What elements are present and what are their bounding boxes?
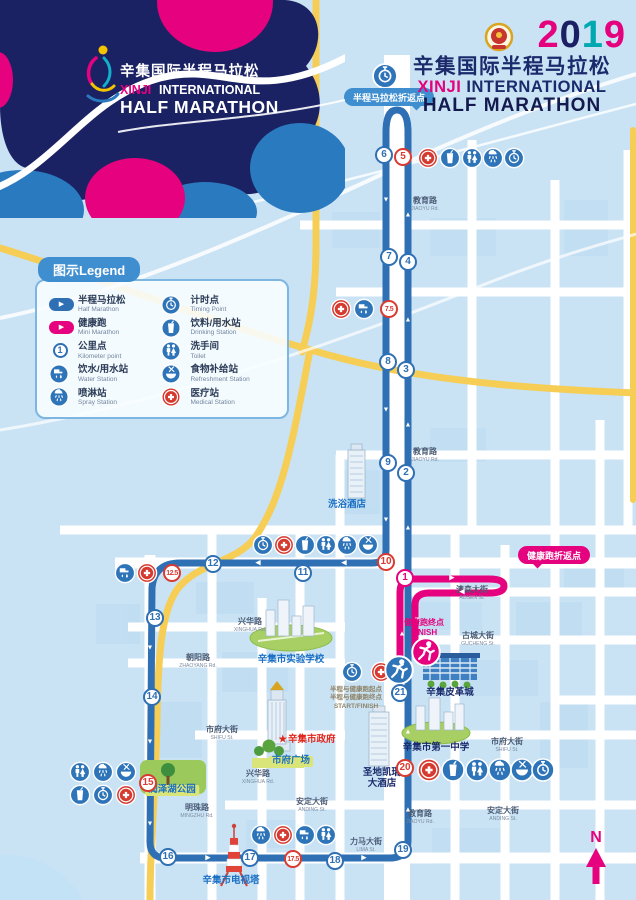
road-name-cn: 兴华路 — [231, 618, 269, 627]
km-marker-4: 4 — [399, 253, 417, 271]
start-finish-label: 半程与健康跑起点 半程与健康跑终点 START/FINISH — [330, 686, 382, 711]
road-name-en: ANDING St. — [298, 807, 325, 813]
legend-item: 洗手间Toilet — [161, 339, 283, 362]
route-direction-arrow: ◀ — [341, 560, 346, 567]
km-marker-20: 20 — [396, 759, 414, 777]
toilet-station-icon — [316, 825, 337, 846]
legend-item-en: Water Station — [78, 376, 128, 383]
logo-title-en-accent: XINJI — [120, 83, 151, 97]
landmark-label: 辛集皮革城 — [426, 688, 474, 699]
road-label: 市府大街SHIFU St. — [206, 726, 238, 741]
legend-item: 医疗站Medical Station — [161, 386, 283, 409]
road-label: 教育路JIAOYU Rd. — [409, 197, 442, 212]
shower-station-icon — [251, 825, 272, 846]
legend-item: ▶健康跑Mini Marathon — [49, 316, 161, 339]
drink-legend-icon — [161, 318, 183, 338]
water-station-icon — [295, 825, 316, 846]
legend-item-en: Toilet — [190, 353, 219, 360]
route-direction-arrow: ▲ — [405, 729, 412, 736]
water-station-icon — [354, 299, 375, 320]
road-name-cn: 市府大街 — [491, 738, 523, 747]
toilet-station-icon — [462, 148, 483, 169]
legend-item-cn: 半程马拉松 — [78, 296, 126, 306]
toilet-legend-icon — [161, 341, 183, 361]
legend-item: 食物补给站Refreshment Station — [161, 363, 283, 386]
legend-item-en: Refreshment Station — [190, 376, 249, 383]
road-name-en: AOSEN St. — [458, 595, 485, 601]
toilet-station-icon — [316, 535, 337, 556]
legend-item-cn: 洗手间 — [190, 342, 219, 352]
km-marker-19: 19 — [394, 841, 412, 859]
road-name-en: ANDING St. — [489, 816, 516, 822]
route-direction-arrow: ▲ — [405, 422, 412, 429]
year-digit: 0 — [560, 14, 582, 56]
event-logo: 辛集国际半程马拉松 XINJI INTERNATIONAL HALF MARAT… — [0, 0, 345, 218]
road-name-cn: 兴华路 — [239, 770, 277, 779]
legend-item: 1公里点Kilometer point — [49, 339, 161, 362]
water-station-icon — [115, 563, 136, 584]
timing-station-icon — [253, 535, 274, 556]
timing-legend-icon — [161, 295, 183, 315]
route-direction-arrow: ▶ — [205, 855, 210, 862]
road-name-en: SHIFU St. — [493, 747, 520, 753]
legend-item-en: Half Marathon — [78, 306, 126, 313]
road-name-en: ZHAOYANG Rd. — [179, 663, 217, 669]
km-marker-7: 7 — [380, 248, 398, 266]
road-label: 教育路JIAOYU Rd. — [409, 448, 442, 463]
road-label: 朝阳路ZHAOYANG Rd. — [176, 654, 220, 669]
km-marker-17: 17 — [241, 849, 259, 867]
timing-station-icon — [342, 662, 363, 683]
road-label: 市府大街SHIFU St. — [491, 738, 523, 753]
road-name-cn: 朝阳路 — [176, 654, 220, 663]
km-marker-3: 3 — [397, 361, 415, 379]
legend-item: 饮料/用水站Drinking Station — [161, 316, 283, 339]
legend-item-cn: 医疗站 — [190, 389, 234, 399]
road-name-cn: 安定大街 — [296, 798, 328, 807]
toilet-station-icon — [465, 758, 489, 782]
road-name-en: JIAOYU Rd. — [411, 457, 439, 463]
timing-station-icon — [93, 785, 114, 806]
drink-station-icon — [440, 148, 461, 169]
medical-station-icon — [331, 299, 352, 320]
event-header: 2019 辛集国际半程马拉松 XINJI INTERNATIONAL HALF … — [392, 16, 632, 117]
legend-item: 喷淋站Spray Station — [49, 386, 161, 409]
route-direction-arrow: ▼ — [147, 821, 154, 828]
route-direction-arrow: ▼ — [147, 739, 154, 746]
north-label: N — [590, 829, 602, 847]
legend-item-cn: 计时点 — [190, 296, 226, 306]
shower-station-icon — [488, 758, 512, 782]
timing-station-icon — [504, 148, 525, 169]
runner-pink-station-icon — [411, 637, 441, 667]
star-icon: ★ — [278, 734, 287, 745]
route-direction-arrow: ▲ — [405, 525, 412, 532]
km-marker-16: 16 — [159, 848, 177, 866]
road-name-en: XINGHUA Rd. — [234, 627, 266, 633]
mini-marathon-turnaround-badge: 健康跑折返点 — [518, 546, 590, 564]
medical-station-icon — [273, 825, 294, 846]
marathon-route-map: 半程马拉松折返点 健康跑折返点 健康跑终点 FINISH 半程与健康跑起点 半程… — [0, 0, 636, 900]
food-legend-icon — [161, 364, 183, 384]
legend-item: 计时点Timing Point — [161, 293, 283, 316]
road-name-en: JIAOYU Rd. — [411, 206, 439, 212]
legend-body: ▶半程马拉松Half Marathon▶健康跑Mini Marathon1公里点… — [35, 279, 289, 419]
shower-legend-icon — [49, 387, 71, 407]
event-emblem-icon — [484, 22, 514, 52]
legend-item-en: Medical Station — [190, 399, 234, 406]
route-direction-arrow: ▲ — [405, 212, 412, 219]
km-marker-10: 10 — [377, 553, 395, 571]
legend-item-en: Mini Marathon — [78, 329, 119, 336]
road-label: 力马大街LIMA St. — [350, 838, 382, 853]
landmark-label: 圣地凯瑞大酒店 — [363, 768, 401, 790]
mini-finish-label: 健康跑终点 FINISH — [404, 618, 444, 637]
road-name-en: SHIFU St. — [208, 735, 235, 741]
km-marker-17.5: 17.5 — [284, 850, 302, 868]
km-marker-9: 9 — [379, 454, 397, 472]
year-digit: 2 — [537, 14, 559, 56]
road-name-cn: 安定大街 — [487, 807, 519, 816]
route-direction-arrow: ▶ — [361, 855, 366, 862]
road-name-cn: 教育路 — [409, 448, 442, 457]
route-direction-arrow: ▼ — [383, 517, 390, 524]
year-digit: 1 — [582, 14, 604, 56]
route-direction-arrow: ▲ — [405, 317, 412, 324]
year-digit: 9 — [604, 14, 626, 56]
road-label: 古城大街GUCHENG St. — [458, 632, 498, 647]
route-direction-arrow: ◀ — [459, 589, 464, 596]
shower-station-icon — [93, 762, 114, 783]
landmark-label: 辛集市电视塔 — [202, 876, 259, 887]
road-name-en: MINGZHU Rd. — [180, 813, 213, 819]
event-title-cn: 辛集国际半程马拉松 — [392, 56, 632, 79]
route-direction-arrow: ▼ — [383, 197, 390, 204]
landmark-label: 辛集市第一中学 — [403, 743, 470, 754]
route-direction-arrow: ▼ — [383, 407, 390, 414]
km-marker-15: 15 — [139, 774, 157, 792]
km-marker-12.5: 12.5 — [163, 564, 181, 582]
legend-title: 图示Legend — [38, 257, 140, 282]
road-label: 兴华路XINGHUA Rd. — [239, 770, 277, 785]
route-direction-arrow: ▲ — [405, 807, 412, 814]
road-name-en: XINGHUA Rd. — [242, 779, 274, 785]
road-label: 安定大街ANDING St. — [487, 807, 519, 822]
road-label: 兴华路XINGHUA Rd. — [231, 618, 269, 633]
road-name-en: JIAOYU Rd. — [406, 819, 434, 825]
km-marker-14: 14 — [143, 688, 161, 706]
water-legend-icon — [49, 364, 71, 384]
road-name-cn: 教育路 — [409, 197, 442, 206]
logo-title-en2: HALF MARATHON — [120, 97, 279, 117]
legend-item: 饮水/用水站Water Station — [49, 363, 161, 386]
medical-station-icon — [274, 535, 295, 556]
km-marker-12: 12 — [204, 555, 222, 573]
legend-item-cn: 饮水/用水站 — [78, 365, 128, 375]
drink-station-icon — [441, 758, 465, 782]
km-marker-1: 1 — [396, 569, 414, 587]
shower-station-icon — [483, 148, 504, 169]
legend-item-cn: 喷淋站 — [78, 389, 117, 399]
pill-blue-legend-icon: ▶ — [49, 298, 71, 311]
road-name-cn: 明珠路 — [178, 804, 217, 813]
km-marker-21: 21 — [391, 684, 409, 702]
km-marker-18: 18 — [326, 852, 344, 870]
legend-item-en: Drinking Station — [190, 329, 240, 336]
km-marker-8: 8 — [379, 353, 397, 371]
food-station-icon — [116, 762, 137, 783]
route-direction-arrow: ▶ — [449, 575, 454, 582]
legend-panel: 图示Legend ▶半程马拉松Half Marathon▶健康跑Mini Mar… — [35, 257, 289, 419]
road-label: 明珠路MINGZHU Rd. — [178, 804, 217, 819]
mini-finish-en: FINISH — [411, 628, 437, 637]
legend-item-en: Spray Station — [78, 399, 117, 406]
km-marker-7.5: 7.5 — [380, 300, 398, 318]
timing-station-icon — [531, 758, 555, 782]
food-station-icon — [358, 535, 379, 556]
road-name-cn: 古城大街 — [458, 632, 498, 641]
drink-station-icon — [295, 535, 316, 556]
medical-station-icon — [418, 148, 439, 169]
road-name-en: LIMA St. — [352, 847, 379, 853]
shower-station-icon — [337, 535, 358, 556]
km-marker-11: 11 — [294, 564, 312, 582]
landmark-label: ★辛集市政府 — [278, 735, 335, 746]
route-direction-arrow: ◀ — [255, 560, 260, 567]
pill-pink-legend-icon: ▶ — [49, 321, 71, 334]
toilet-station-icon — [70, 762, 91, 783]
medical-station-icon — [116, 785, 137, 806]
legend-item: ▶半程马拉松Half Marathon — [49, 293, 161, 316]
legend-item-en: Timing Point — [190, 306, 226, 313]
km-marker-13: 13 — [146, 609, 164, 627]
road-name-cn: 市府大街 — [206, 726, 238, 735]
logo-title-cn: 辛集国际半程马拉松 — [120, 62, 260, 80]
medical-station-icon — [137, 563, 158, 584]
event-title-en: XINJI INTERNATIONAL — [392, 79, 632, 96]
km-marker-5: 5 — [394, 148, 412, 166]
mini-finish-cn: 健康跑终点 — [404, 618, 444, 627]
event-title-en2: HALF MARATHON — [392, 96, 632, 117]
km-marker-2: 2 — [397, 464, 415, 482]
landmark-label: 洗浴酒店 — [328, 500, 366, 511]
logo-title-en-rest: INTERNATIONAL — [159, 83, 261, 97]
legend-item-cn: 健康跑 — [78, 319, 119, 329]
landmark-label: 市府广场 — [269, 756, 313, 767]
road-name-cn: 力马大街 — [350, 838, 382, 847]
road-label: 安定大街ANDING St. — [296, 798, 328, 813]
medical-legend-icon — [161, 387, 183, 407]
km-marker-6: 6 — [375, 146, 393, 164]
km-legend-icon: 1 — [49, 343, 71, 358]
legend-item-en: Kilometer point — [78, 353, 121, 360]
landmark-label: 辛集市实验学校 — [258, 655, 325, 666]
legend-item-cn: 公里点 — [78, 342, 121, 352]
runner-blue-station-icon — [384, 655, 414, 685]
legend-item-cn: 饮料/用水站 — [190, 319, 240, 329]
legend-item-cn: 食物补给站 — [190, 365, 249, 375]
route-direction-arrow: ▼ — [147, 645, 154, 652]
medical-station-icon — [417, 758, 441, 782]
drink-station-icon — [70, 785, 91, 806]
road-name-en: GUCHENG St. — [461, 641, 495, 647]
